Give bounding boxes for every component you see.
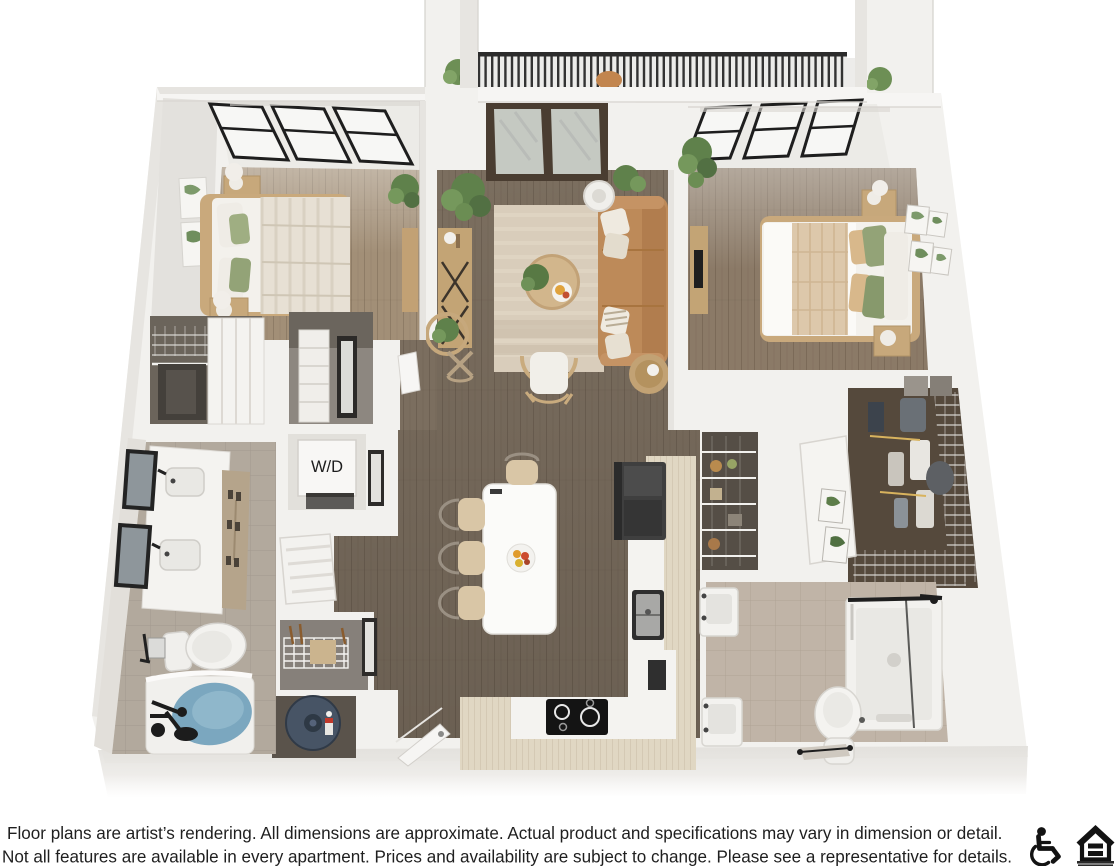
svg-text:W/D: W/D: [311, 458, 343, 476]
svg-text:Not all features are available: Not all features are available in every …: [2, 848, 1012, 866]
svg-text:Floor plans are artist’s rende: Floor plans are artist’s rendering. All …: [7, 824, 1002, 843]
